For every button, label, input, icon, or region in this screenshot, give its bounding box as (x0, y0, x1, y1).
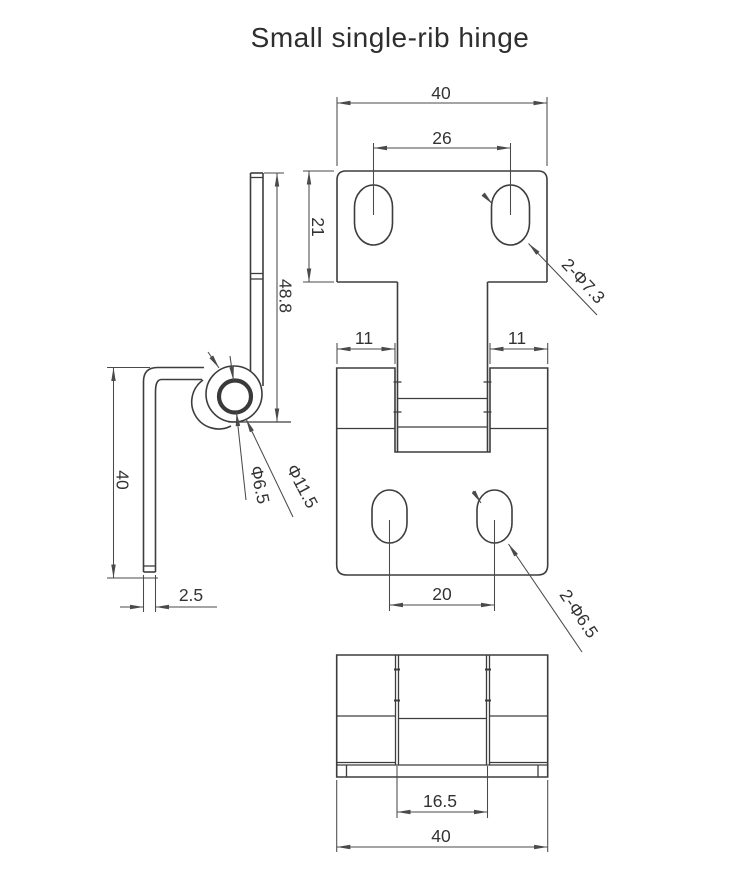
hinge-drawing: 40 2.5 48.8 Φ6.5 Φ11.5 (0, 0, 750, 880)
dim-label-barrel-dia: Φ11.5 (282, 461, 322, 512)
dim-label-thickness: 2.5 (179, 585, 203, 605)
dim-label-tongue-width: 16.5 (423, 791, 457, 811)
dim-label-overall-width: 40 (431, 826, 451, 846)
dim-label-knuckle-left: 11 (355, 328, 373, 348)
side-view (144, 173, 292, 572)
dim-label-bottom-holes: 2-Φ6.5 (556, 586, 603, 642)
dim-label-plate-height: 21 (308, 217, 328, 236)
dim-label-top-holes: 2-Φ7.3 (558, 254, 609, 307)
side-view-dimensions: 40 2.5 48.8 Φ6.5 Φ11.5 (107, 173, 322, 612)
front-view (337, 171, 548, 575)
bottom-view-dimensions: 16.5 40 (337, 766, 548, 852)
leader-barrel-upper (208, 352, 219, 368)
dim-label-arm-length: 40 (113, 470, 133, 490)
dim-label-leaf-length: 48.8 (276, 279, 296, 313)
leader-pin-hole-lower (237, 413, 247, 501)
top-plate-outline (337, 171, 547, 282)
dim-label-width-top: 40 (431, 83, 451, 103)
leader-bottom-holes-upper (473, 491, 481, 503)
dim-label-knuckle-right: 11 (508, 328, 526, 348)
leader-pin-hole-upper (230, 356, 234, 381)
drawing-sheet: Small single-rib hinge (0, 0, 750, 880)
bottom-view (337, 655, 548, 777)
dim-label-pin-hole-dia: Φ6.5 (246, 464, 274, 506)
side-arm-inner-corner (156, 380, 162, 392)
barrel-curl-arc (192, 380, 231, 429)
dim-label-hole-pitch-top: 26 (432, 128, 451, 148)
dim-label-hole-pitch-bottom: 20 (432, 584, 452, 604)
pin-hole-circle (219, 381, 251, 413)
side-arm-outer-corner (144, 368, 158, 382)
leader-top-holes-upper (483, 194, 493, 204)
